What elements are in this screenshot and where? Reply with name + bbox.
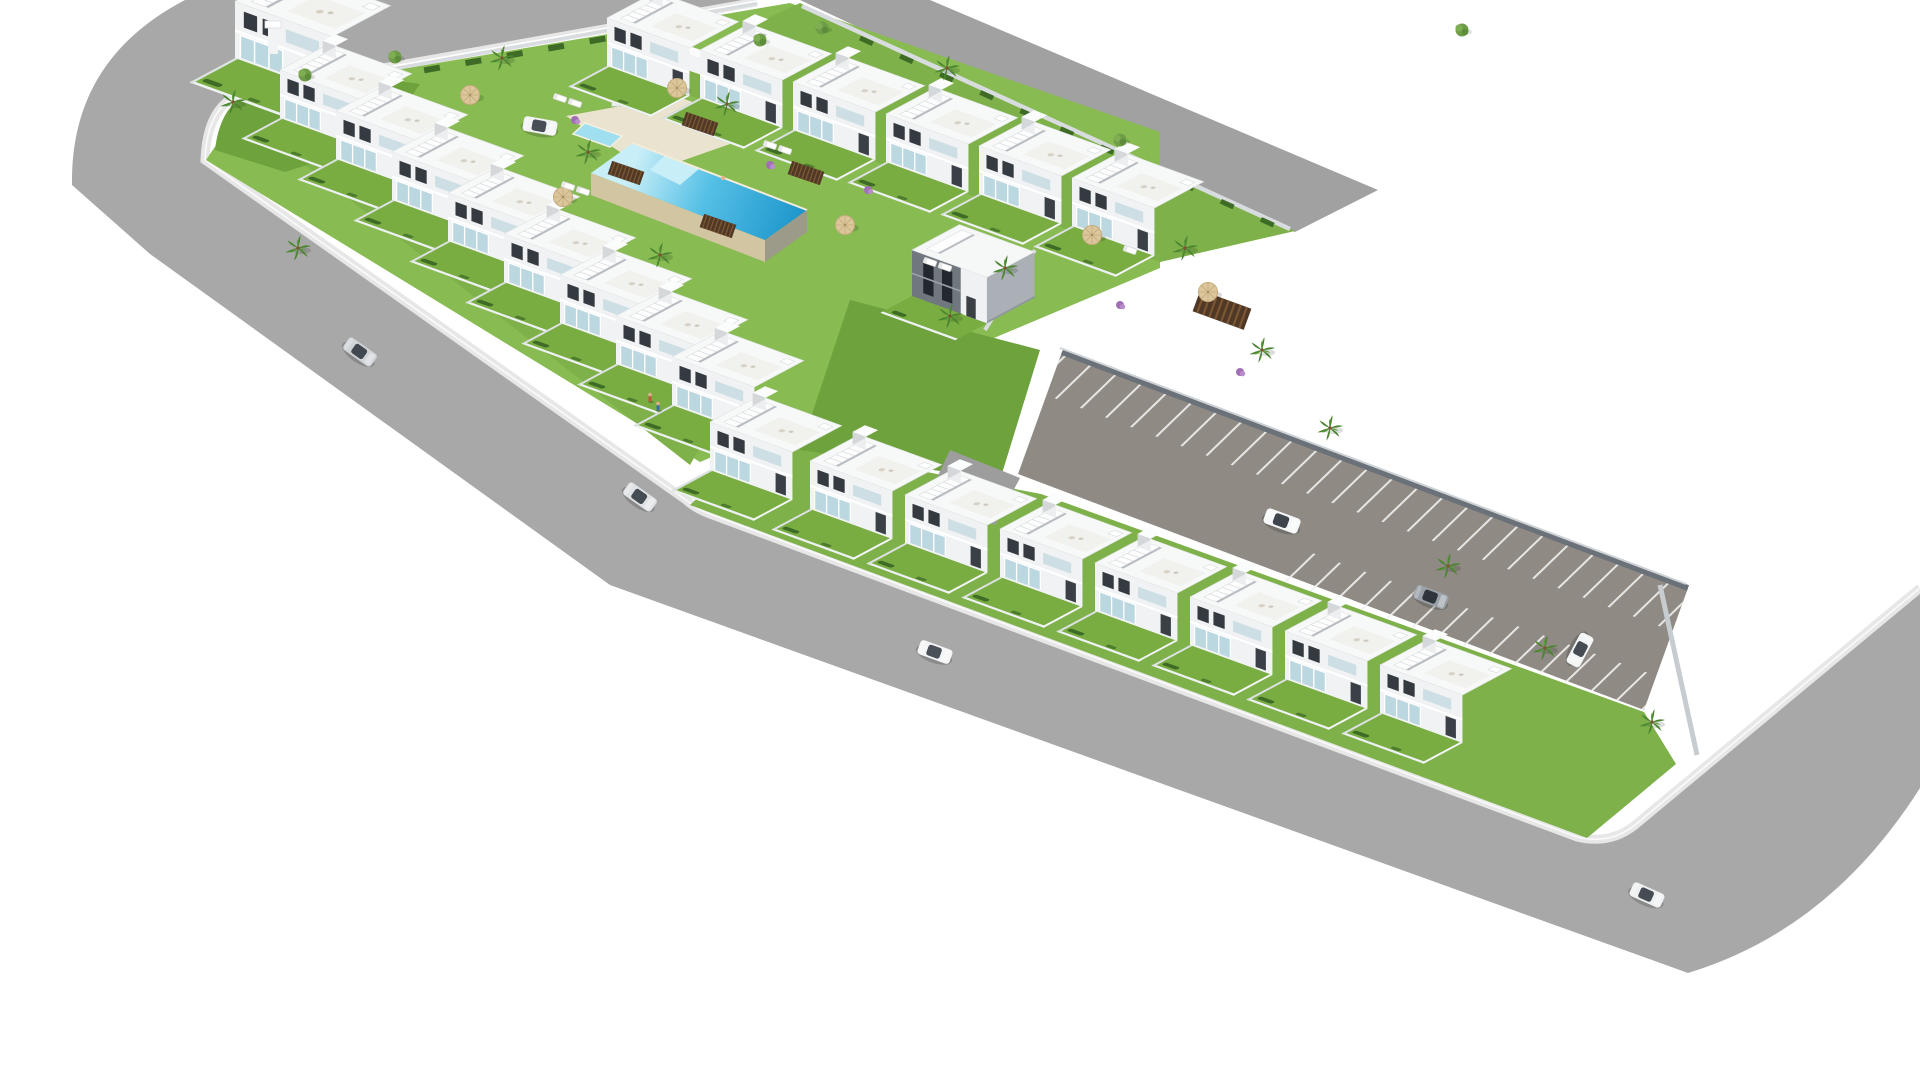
tree [1455, 24, 1472, 37]
swimmer [721, 176, 725, 180]
site-plan-render [0, 0, 1920, 1080]
palm-tree [1249, 337, 1275, 363]
palm-tree [1317, 415, 1343, 441]
render-canvas [0, 0, 1920, 1080]
flowering-bush [1116, 301, 1125, 309]
flowering-bush [1236, 368, 1245, 376]
